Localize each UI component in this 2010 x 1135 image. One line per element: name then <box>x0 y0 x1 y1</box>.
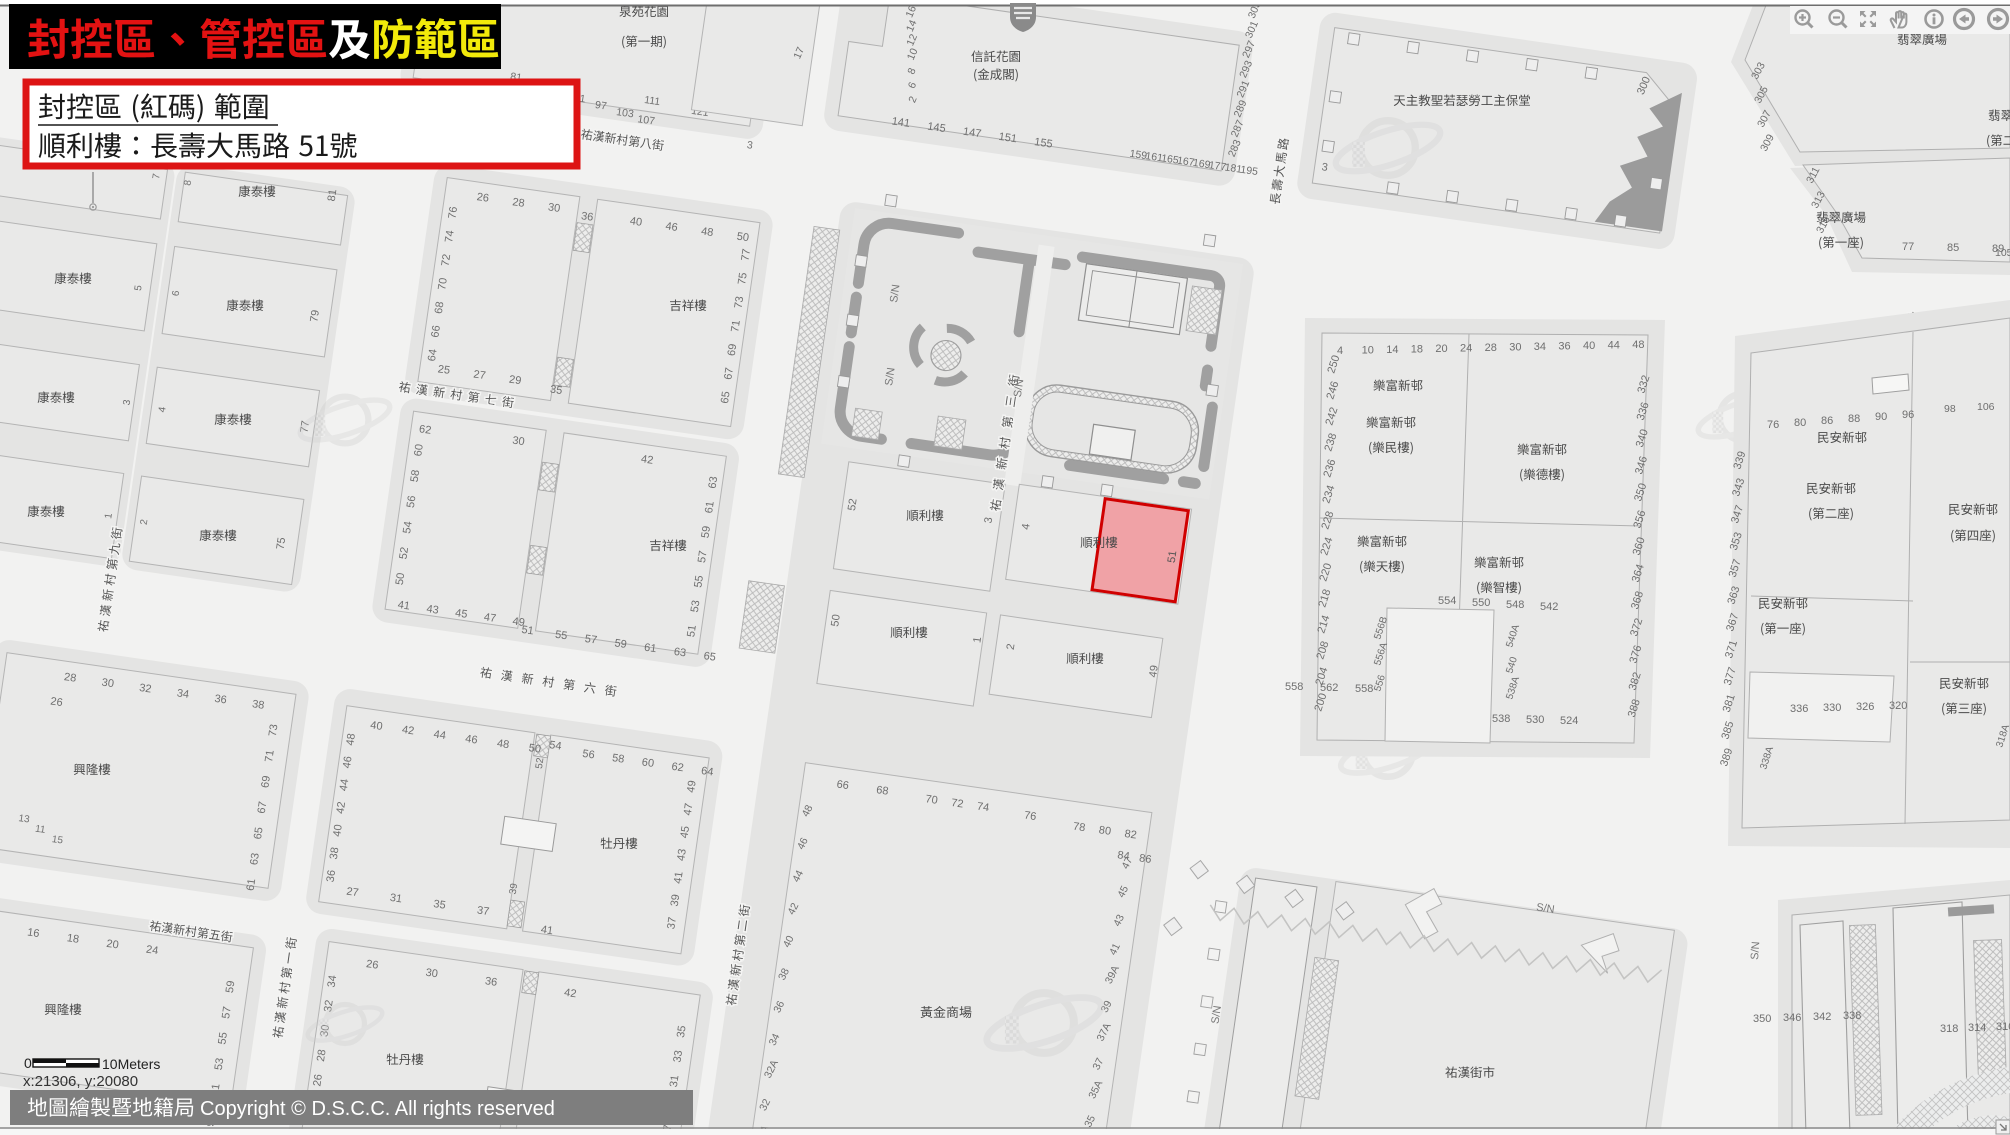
svg-text:38: 38 <box>328 846 342 860</box>
svg-text:40: 40 <box>369 719 383 733</box>
svg-text:111: 111 <box>643 94 661 108</box>
svg-text:63: 63 <box>248 852 262 866</box>
svg-text:48: 48 <box>344 733 358 747</box>
svg-text:34: 34 <box>326 974 340 988</box>
svg-text:52: 52 <box>846 498 860 512</box>
svg-text:39: 39 <box>508 882 521 895</box>
svg-text:0: 0 <box>24 1055 32 1071</box>
svg-text:524: 524 <box>1560 715 1578 727</box>
svg-text:42: 42 <box>640 453 654 467</box>
svg-text:35: 35 <box>675 1025 689 1039</box>
svg-text:75: 75 <box>736 272 750 286</box>
svg-text:55: 55 <box>216 1031 230 1045</box>
svg-text:85: 85 <box>1947 242 1959 254</box>
svg-text:77: 77 <box>1902 241 1914 253</box>
svg-text:44: 44 <box>338 778 352 792</box>
svg-text:86: 86 <box>1821 415 1833 427</box>
svg-text:20: 20 <box>106 938 120 952</box>
svg-text:75: 75 <box>275 537 289 551</box>
svg-text:28: 28 <box>1485 342 1497 354</box>
svg-text:71: 71 <box>729 319 743 333</box>
svg-text:38: 38 <box>251 698 265 712</box>
svg-text:67: 67 <box>722 367 736 381</box>
svg-text:4: 4 <box>1337 345 1343 357</box>
svg-text:30: 30 <box>101 677 115 691</box>
svg-text:72: 72 <box>950 797 964 811</box>
svg-text:51: 51 <box>1166 550 1180 564</box>
svg-text:35: 35 <box>433 898 447 912</box>
svg-text:50: 50 <box>528 742 542 756</box>
svg-text:27: 27 <box>346 886 360 900</box>
svg-text:26: 26 <box>365 958 379 972</box>
svg-text:107: 107 <box>637 113 656 127</box>
svg-text:318: 318 <box>1940 1023 1958 1035</box>
svg-text:79: 79 <box>308 309 322 323</box>
svg-text:76: 76 <box>1767 419 1779 431</box>
svg-text:538: 538 <box>1492 713 1510 725</box>
svg-text:43: 43 <box>675 848 689 862</box>
svg-text:53: 53 <box>213 1057 227 1071</box>
svg-text:72: 72 <box>440 253 454 267</box>
svg-text:69: 69 <box>726 343 740 357</box>
svg-text:60: 60 <box>641 756 655 770</box>
svg-text:56: 56 <box>405 495 419 509</box>
svg-text:67: 67 <box>256 801 270 815</box>
svg-text:37: 37 <box>476 904 490 918</box>
svg-text:26: 26 <box>476 191 490 205</box>
svg-text:36: 36 <box>325 869 339 883</box>
svg-text:55: 55 <box>692 575 706 589</box>
svg-text:554: 554 <box>1438 595 1456 607</box>
svg-text:10Meters: 10Meters <box>102 1056 160 1072</box>
svg-text:36: 36 <box>1558 341 1570 353</box>
svg-text:42: 42 <box>401 724 415 738</box>
svg-text:66: 66 <box>429 325 443 339</box>
svg-text:46: 46 <box>665 220 679 234</box>
svg-text:558: 558 <box>1285 681 1303 693</box>
svg-text:73: 73 <box>267 723 281 737</box>
svg-text:20: 20 <box>1435 343 1447 355</box>
svg-text:28: 28 <box>63 671 77 685</box>
svg-text:320: 320 <box>1889 700 1907 712</box>
svg-text:81: 81 <box>326 188 340 202</box>
svg-text:28: 28 <box>512 196 526 210</box>
svg-text:43: 43 <box>426 603 440 617</box>
svg-text:548: 548 <box>1506 599 1524 611</box>
svg-text:98: 98 <box>1944 403 1956 415</box>
svg-text:76: 76 <box>1023 809 1037 823</box>
svg-text:48: 48 <box>700 225 714 239</box>
svg-text:342: 342 <box>1813 1011 1831 1023</box>
svg-text:39: 39 <box>669 894 683 908</box>
svg-text:56: 56 <box>582 748 596 762</box>
svg-text:558: 558 <box>1355 683 1373 695</box>
svg-text:49: 49 <box>685 780 699 794</box>
svg-text:88: 88 <box>1848 413 1860 425</box>
svg-text:34: 34 <box>176 687 190 701</box>
svg-text:326: 326 <box>1856 701 1874 713</box>
svg-text:66: 66 <box>836 778 850 792</box>
svg-text:34: 34 <box>1534 341 1546 353</box>
svg-text:25: 25 <box>437 363 451 377</box>
svg-text:63: 63 <box>673 646 687 660</box>
svg-text:26: 26 <box>311 1073 325 1087</box>
svg-text:61: 61 <box>245 878 259 892</box>
svg-text:42: 42 <box>563 987 577 1001</box>
svg-text:71: 71 <box>263 749 277 763</box>
svg-text:30: 30 <box>1509 342 1521 354</box>
svg-text:31: 31 <box>668 1074 682 1088</box>
svg-text:64: 64 <box>426 348 440 362</box>
svg-text:42: 42 <box>334 801 348 815</box>
svg-text:53: 53 <box>689 599 703 613</box>
svg-text:32: 32 <box>138 682 152 696</box>
svg-text:45: 45 <box>679 825 693 839</box>
svg-text:18: 18 <box>1411 344 1423 356</box>
svg-text:58: 58 <box>611 752 625 766</box>
svg-text:44: 44 <box>1608 340 1620 352</box>
svg-text:562: 562 <box>1320 682 1338 694</box>
svg-text:530: 530 <box>1526 714 1544 726</box>
svg-text:105: 105 <box>1995 247 2010 259</box>
svg-text:18: 18 <box>66 932 80 946</box>
svg-text:74: 74 <box>976 801 990 815</box>
svg-text:63: 63 <box>707 476 721 490</box>
svg-text:77: 77 <box>739 248 753 262</box>
svg-text:70: 70 <box>436 277 450 291</box>
svg-text:24: 24 <box>1460 343 1472 355</box>
svg-text:41: 41 <box>672 871 686 885</box>
svg-text:54: 54 <box>549 739 563 753</box>
svg-text:195: 195 <box>1240 164 1259 178</box>
svg-text:76: 76 <box>446 206 460 220</box>
svg-text:57: 57 <box>584 633 598 647</box>
svg-text:314: 314 <box>1968 1022 1986 1034</box>
svg-text:59: 59 <box>614 637 628 651</box>
svg-text:542: 542 <box>1540 601 1558 613</box>
svg-text:28: 28 <box>315 1049 329 1063</box>
svg-text:78: 78 <box>1072 821 1086 835</box>
svg-text:80: 80 <box>1098 824 1112 838</box>
svg-text:Copyright © D.S.C.C. All right: Copyright © D.S.C.C. All rights reserved <box>200 1098 555 1120</box>
svg-text:45: 45 <box>454 607 468 621</box>
svg-text:55: 55 <box>554 629 568 643</box>
svg-text:49: 49 <box>1147 664 1161 678</box>
svg-text:51: 51 <box>685 624 699 638</box>
svg-text:73: 73 <box>733 296 747 310</box>
svg-text:74: 74 <box>443 230 457 244</box>
svg-text:338: 338 <box>1843 1010 1861 1022</box>
svg-text:24: 24 <box>145 944 159 958</box>
svg-text:103: 103 <box>615 106 634 120</box>
svg-text:40: 40 <box>331 824 345 838</box>
svg-text:x:21306, y:20080: x:21306, y:20080 <box>23 1073 138 1090</box>
svg-text:46: 46 <box>465 733 479 747</box>
svg-text:S/N: S/N <box>1749 941 1762 960</box>
svg-text:62: 62 <box>671 761 685 775</box>
svg-text:29: 29 <box>508 374 522 388</box>
svg-text:62: 62 <box>418 423 432 437</box>
svg-text:65: 65 <box>703 650 717 664</box>
svg-text:30: 30 <box>512 435 526 449</box>
svg-text:52: 52 <box>397 546 411 560</box>
svg-text:57: 57 <box>696 550 710 564</box>
svg-text:550: 550 <box>1472 597 1490 609</box>
svg-text:64: 64 <box>700 765 714 779</box>
svg-text:70: 70 <box>925 793 939 807</box>
svg-text:336: 336 <box>1790 703 1808 715</box>
svg-text:60: 60 <box>412 443 426 457</box>
svg-text:36: 36 <box>580 210 594 224</box>
svg-text:97: 97 <box>594 99 607 113</box>
svg-text:346: 346 <box>1783 1012 1801 1024</box>
svg-text:82: 82 <box>1124 828 1138 842</box>
svg-text:59: 59 <box>224 980 238 994</box>
svg-text:30: 30 <box>425 967 439 981</box>
svg-text:65: 65 <box>252 826 266 840</box>
svg-text:36: 36 <box>214 693 228 707</box>
svg-text:50: 50 <box>394 572 408 586</box>
svg-text:33: 33 <box>671 1049 685 1063</box>
svg-text:48: 48 <box>1632 339 1644 351</box>
svg-text:310: 310 <box>1996 1021 2010 1033</box>
svg-text:13: 13 <box>18 813 31 826</box>
svg-text:26: 26 <box>50 695 64 709</box>
svg-text:15: 15 <box>51 834 64 847</box>
svg-text:106: 106 <box>1977 401 1995 413</box>
svg-text:59: 59 <box>700 525 714 539</box>
svg-text:96: 96 <box>1902 409 1914 421</box>
svg-text:10: 10 <box>1362 345 1374 357</box>
svg-text:40: 40 <box>629 215 643 229</box>
svg-text:27: 27 <box>473 368 487 382</box>
svg-text:68: 68 <box>875 784 889 798</box>
svg-text:80: 80 <box>1794 417 1806 429</box>
svg-text:61: 61 <box>703 500 717 514</box>
svg-text:14: 14 <box>1386 344 1398 356</box>
svg-text:90: 90 <box>1875 411 1887 423</box>
svg-text:41: 41 <box>540 924 554 938</box>
svg-text:47: 47 <box>682 802 696 816</box>
svg-text:40: 40 <box>1583 340 1595 352</box>
svg-text:16: 16 <box>26 926 40 940</box>
svg-text:54: 54 <box>401 521 415 535</box>
svg-text:50: 50 <box>736 231 750 245</box>
svg-text:31: 31 <box>389 892 403 906</box>
svg-text:44: 44 <box>433 728 447 742</box>
svg-text:330: 330 <box>1823 702 1841 714</box>
svg-text:58: 58 <box>409 469 423 483</box>
svg-text:51: 51 <box>521 624 535 638</box>
svg-text:86: 86 <box>1138 852 1152 866</box>
svg-text:52: 52 <box>534 757 547 770</box>
svg-text:47: 47 <box>483 611 497 625</box>
svg-text:48: 48 <box>496 738 510 752</box>
svg-text:68: 68 <box>433 301 447 315</box>
svg-text:36: 36 <box>484 975 498 989</box>
svg-text:30: 30 <box>547 201 561 215</box>
svg-text:65: 65 <box>719 391 733 405</box>
svg-text:37: 37 <box>665 916 679 930</box>
svg-text:41: 41 <box>397 599 411 613</box>
svg-text:35: 35 <box>549 384 563 398</box>
svg-text:350: 350 <box>1753 1013 1771 1025</box>
svg-text:57: 57 <box>220 1006 234 1020</box>
svg-text:11: 11 <box>34 824 46 836</box>
svg-text:50: 50 <box>829 614 843 628</box>
svg-text:69: 69 <box>259 775 273 789</box>
svg-text:46: 46 <box>341 755 355 769</box>
svg-text:61: 61 <box>643 642 657 656</box>
